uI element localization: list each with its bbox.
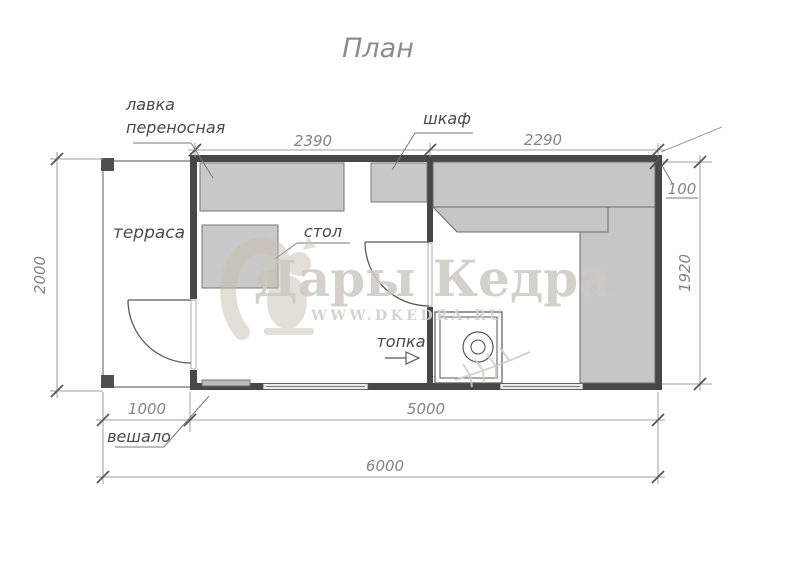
page-title: План xyxy=(342,33,414,64)
terrace-outline xyxy=(101,158,190,388)
label-table: стол xyxy=(304,222,342,241)
label-portable-bench-line2: переносная xyxy=(126,118,226,137)
label-terrace: терраса xyxy=(113,223,185,243)
bench-tier1 xyxy=(433,162,655,207)
floor-plan-page: План xyxy=(0,0,800,565)
dim-terrace-width: 1000 xyxy=(128,400,166,418)
dim-inner-depth: 1920 xyxy=(676,254,694,292)
dim-room1-width: 2390 xyxy=(294,132,332,150)
watermark-brand: Дары Кедра xyxy=(253,249,610,308)
floor-plan-drawing: План xyxy=(0,0,800,565)
door-jamb-entrance xyxy=(191,300,196,369)
wall-left-lower xyxy=(190,370,197,390)
bench-tier2 xyxy=(433,207,608,232)
terrace-post-top xyxy=(101,158,114,171)
label-hanger: вешало xyxy=(107,427,171,446)
wall-partition-upper xyxy=(427,162,433,242)
wall-bottom xyxy=(190,383,662,390)
label-furnace: топка xyxy=(376,332,425,351)
dim-room2-width: 2290 xyxy=(524,131,562,149)
watermark-site: WWW.DKEDRA.RU xyxy=(310,308,505,324)
furnace-arrow xyxy=(385,352,419,364)
arrow-right-icon xyxy=(406,352,419,364)
dim-house-width: 5000 xyxy=(407,400,445,418)
cabinet xyxy=(371,163,427,202)
dim-total-width: 6000 xyxy=(366,457,404,475)
hanger-rack xyxy=(202,380,250,386)
dim-terrace-depth: 2000 xyxy=(31,256,49,294)
label-cabinet: шкаф xyxy=(423,109,471,128)
label-portable-bench-line1: лавка xyxy=(125,95,175,114)
watermark: Дары Кедра WWW.DKEDRA.RU xyxy=(228,237,611,387)
wall-right xyxy=(655,155,662,390)
wall-left-upper xyxy=(190,155,197,299)
portable-bench xyxy=(200,163,344,211)
terrace-post-bottom xyxy=(101,375,114,388)
wall-top xyxy=(190,155,662,162)
door-swing-entrance xyxy=(128,300,191,363)
